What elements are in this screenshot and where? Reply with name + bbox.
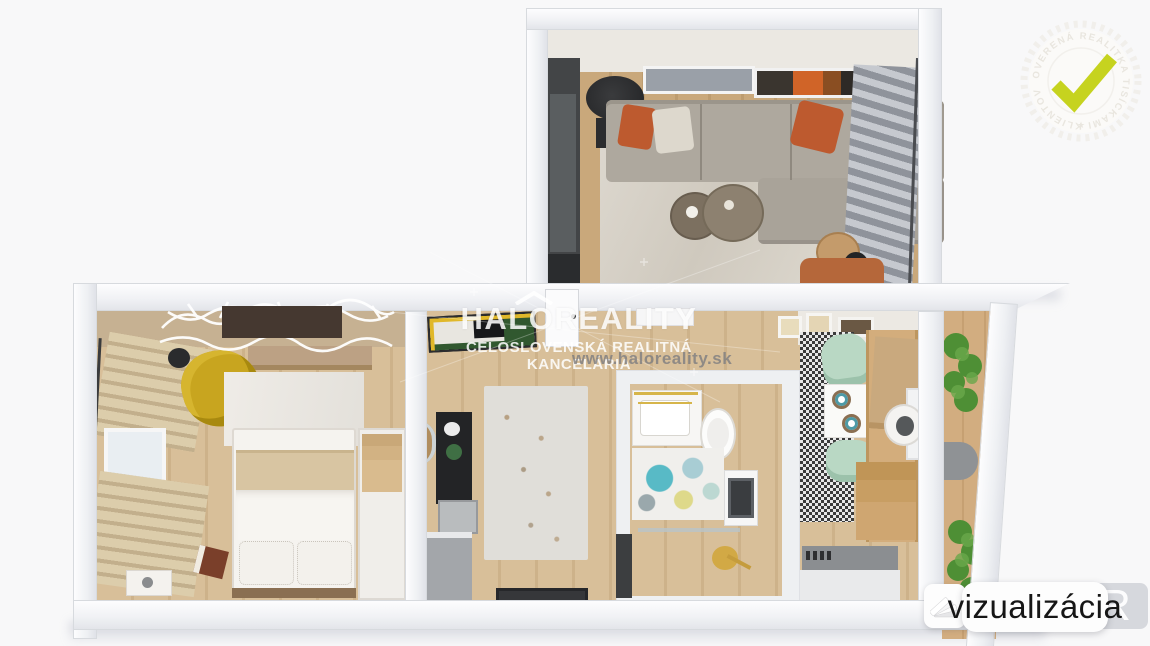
badge-star-icon: ★ xyxy=(1077,120,1085,130)
plate-2 xyxy=(842,414,861,433)
washing-machine-door xyxy=(728,478,754,518)
bed-pillow-left xyxy=(239,541,294,585)
gold-towel-bar-2 xyxy=(638,402,692,404)
gold-towel-bar xyxy=(634,392,698,395)
bathroom-floral-rug xyxy=(632,448,724,520)
wall-kitchen-right xyxy=(918,311,944,603)
round-sink-bowl xyxy=(896,416,914,436)
shower-glass xyxy=(638,528,740,532)
cup-icon xyxy=(724,200,734,210)
visualization-label: vizualizácia xyxy=(962,582,1108,632)
shelf-decor-white xyxy=(444,422,460,436)
wire-basket xyxy=(438,500,478,534)
visualization-label-text: vizualizácia xyxy=(948,588,1123,626)
counter-front xyxy=(800,570,900,600)
hob-controls xyxy=(806,551,834,560)
badge-disc xyxy=(1029,29,1133,133)
hallway-wall-art xyxy=(427,311,537,353)
verified-badge: OVERENÁ REALITKA TISÍCKAMI KLIENTOV ★ xyxy=(1016,16,1146,146)
wall-main-bottom xyxy=(73,600,1013,630)
console-shelf xyxy=(636,308,694,326)
wall-living-right xyxy=(918,8,942,310)
balcony-half-table xyxy=(942,442,978,480)
bed-blanket xyxy=(236,450,354,490)
wall-living-top xyxy=(526,8,940,30)
wall-main-left xyxy=(73,283,97,639)
plate-1 xyxy=(832,390,851,409)
sofa-cushion-seam xyxy=(700,104,702,180)
kitchen-frame-1 xyxy=(778,316,802,338)
hallway-floral-rug xyxy=(484,386,588,560)
shelf-plant-icon xyxy=(446,444,462,460)
wall-bedroom-hallway xyxy=(405,311,427,601)
nightstand-knob xyxy=(142,577,153,588)
wall-art-gray xyxy=(643,66,755,94)
wall-living-left xyxy=(526,8,548,310)
toilet-seat xyxy=(707,418,729,450)
gray-shoe-cabinet xyxy=(424,532,472,600)
white-pillow xyxy=(651,106,694,154)
sink-bowl xyxy=(640,400,690,436)
coffee-table-large xyxy=(702,184,764,242)
tv-cabinet-panel xyxy=(550,94,576,252)
bathroom-dark-panel xyxy=(616,534,632,598)
floorplan-render: HALOREALITY CELOSLOVENSKÁ REALITNÁ KANCE… xyxy=(0,0,1150,646)
bed-headboard xyxy=(232,588,356,598)
door-handle xyxy=(571,314,576,319)
bedroom-tv-panel xyxy=(222,306,342,338)
bed-duvet xyxy=(236,490,354,540)
wardrobe-shelves xyxy=(362,434,402,492)
orange-pillow-left xyxy=(617,104,657,151)
bed-pillow-right xyxy=(297,541,352,585)
kitchen-drawers xyxy=(856,462,916,540)
tray-icon xyxy=(686,206,698,218)
